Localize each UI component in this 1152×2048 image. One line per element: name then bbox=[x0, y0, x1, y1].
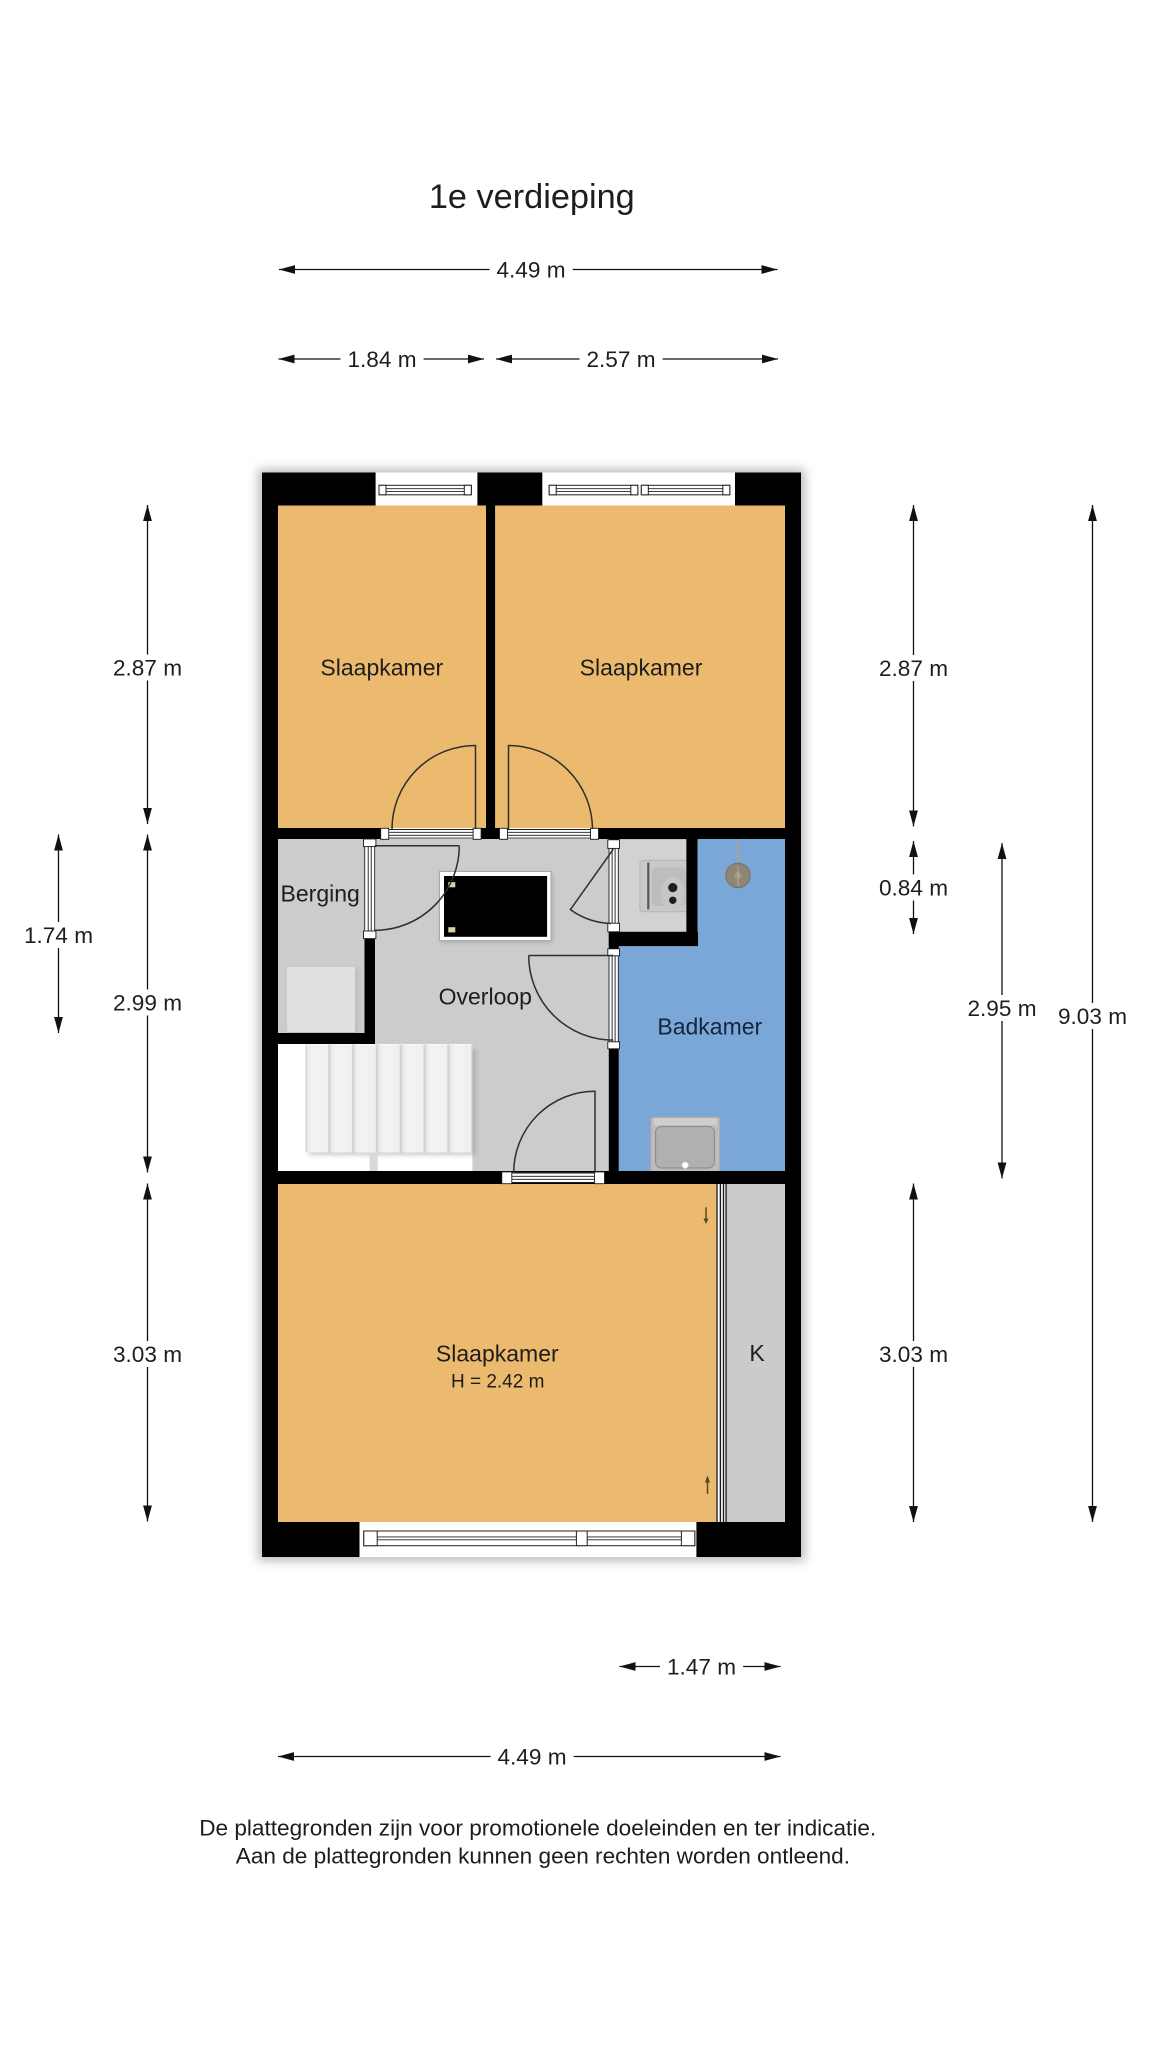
svg-text:De plattegronden zijn voor pro: De plattegronden zijn voor promotionele … bbox=[199, 1816, 876, 1841]
svg-text:2.87 m: 2.87 m bbox=[113, 656, 182, 681]
svg-text:Aan de plattegronden kunnen ge: Aan de plattegronden kunnen geen rechten… bbox=[236, 1844, 850, 1869]
svg-text:1e verdieping: 1e verdieping bbox=[429, 178, 635, 216]
svg-text:1.74 m: 1.74 m bbox=[24, 923, 93, 948]
svg-text:Slaapkamer: Slaapkamer bbox=[436, 1340, 559, 1366]
svg-text:4.49 m: 4.49 m bbox=[496, 258, 565, 283]
svg-text:H = 2.42 m: H = 2.42 m bbox=[451, 1371, 544, 1392]
svg-text:Slaapkamer: Slaapkamer bbox=[320, 654, 443, 680]
svg-text:Berging: Berging bbox=[281, 881, 360, 907]
svg-text:2.95 m: 2.95 m bbox=[967, 996, 1036, 1021]
svg-text:2.99 m: 2.99 m bbox=[113, 991, 182, 1016]
svg-text:Slaapkamer: Slaapkamer bbox=[580, 654, 703, 680]
svg-text:2.57 m: 2.57 m bbox=[586, 347, 655, 372]
svg-text:4.49 m: 4.49 m bbox=[497, 1745, 566, 1770]
svg-text:3.03 m: 3.03 m bbox=[879, 1342, 948, 1367]
svg-text:K: K bbox=[749, 1340, 765, 1366]
svg-text:1.84 m: 1.84 m bbox=[347, 347, 416, 372]
svg-text:Badkamer: Badkamer bbox=[657, 1013, 762, 1039]
svg-text:1.47 m: 1.47 m bbox=[667, 1655, 736, 1680]
svg-text:2.87 m: 2.87 m bbox=[879, 656, 948, 681]
svg-text:9.03 m: 9.03 m bbox=[1058, 1004, 1127, 1029]
svg-text:0.84 m: 0.84 m bbox=[879, 876, 948, 901]
svg-text:3.03 m: 3.03 m bbox=[113, 1342, 182, 1367]
svg-text:Overloop: Overloop bbox=[439, 983, 532, 1009]
